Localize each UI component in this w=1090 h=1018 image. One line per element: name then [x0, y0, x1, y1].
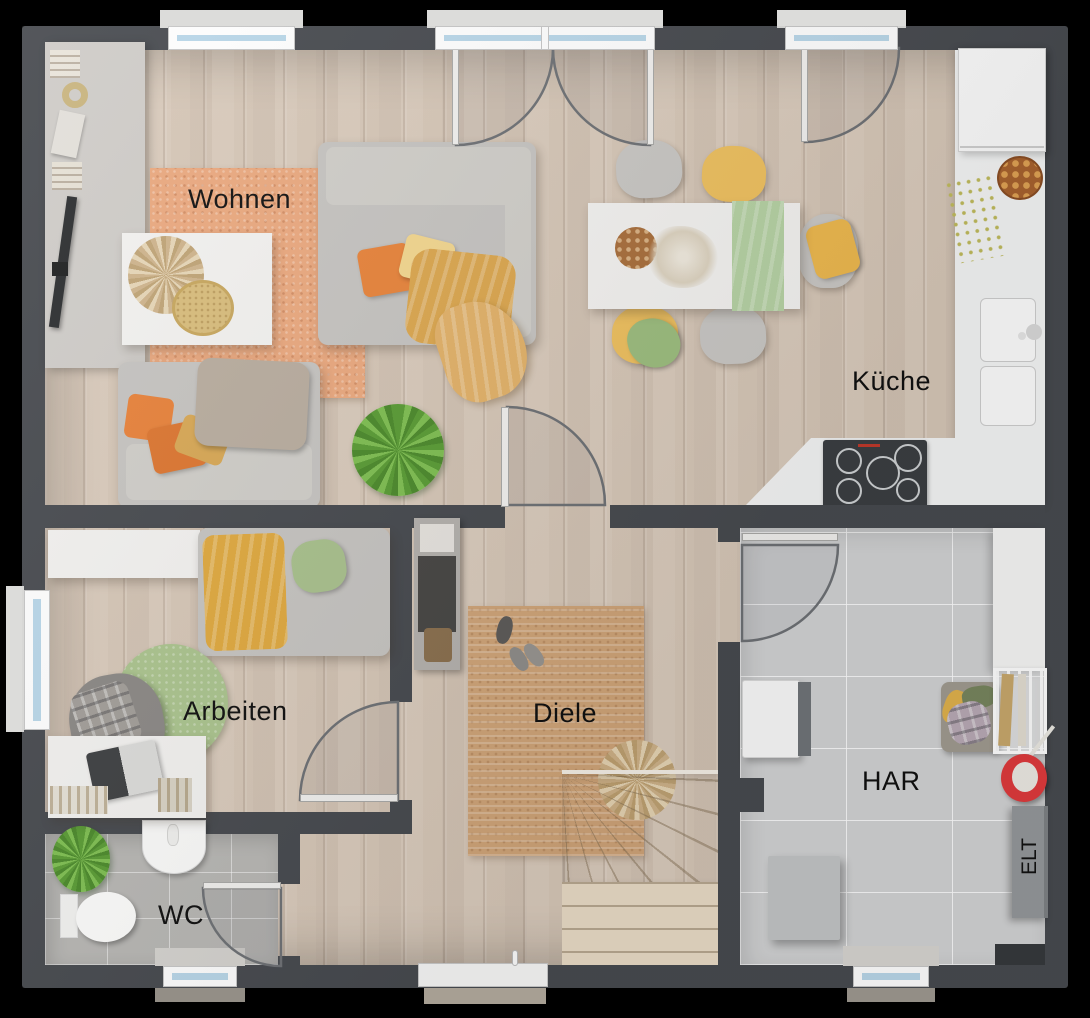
dining-chair-yellow-1 [701, 144, 768, 203]
door-leaf-wohnen [501, 407, 509, 507]
har-floor-recess [995, 944, 1045, 965]
washing-machine [742, 680, 800, 758]
tv-mount [52, 262, 68, 276]
window-glass [33, 599, 41, 721]
label-wc: WC [158, 902, 204, 929]
staircase-winder [562, 774, 718, 882]
label-har: HAR [862, 768, 921, 795]
wall-v-wc-b [278, 956, 300, 965]
dining-chair-gray-1 [615, 138, 684, 199]
door-leaf-french-right [647, 48, 654, 145]
wall-pilaster-har-overlay [740, 778, 764, 812]
window-sill-wc [155, 988, 245, 1002]
wall-v-har-a [718, 528, 740, 542]
daybed-blanket-yellow [202, 533, 288, 652]
table-runner-green [732, 201, 784, 311]
wc-window-niche [155, 948, 245, 966]
door-leaf-har [742, 533, 838, 541]
har-window-niche [843, 946, 939, 966]
window-sill-left [6, 586, 24, 732]
cooktop-display [858, 444, 880, 447]
hall-shelf-deco [420, 524, 454, 552]
entry-step [424, 988, 546, 1004]
har-cabinet-top [993, 528, 1045, 670]
door-leaf-wc [203, 882, 281, 889]
desk-books-1 [50, 786, 108, 814]
deco-books-2 [52, 162, 82, 190]
har-door-threshold [718, 542, 740, 642]
table-flowers [648, 226, 718, 288]
hall-shelf-bag [424, 628, 452, 662]
mop-head [1012, 762, 1038, 792]
blanket-taupe [194, 357, 310, 451]
fridge-door-seam [960, 146, 1044, 148]
window-sill-har [847, 988, 935, 1002]
window-terrace-door [785, 26, 898, 50]
plant-living [352, 404, 444, 496]
window-har [853, 966, 929, 987]
entry-door-handle [512, 950, 518, 966]
burner-4 [894, 444, 922, 472]
rack-cloth-white [1018, 674, 1026, 746]
floor-plan: Wohnen Küche [0, 0, 1090, 1018]
wall-v-office [390, 528, 412, 702]
window-glass [862, 973, 920, 980]
sink-basin-2 [980, 366, 1036, 426]
deco-wreath [62, 82, 88, 108]
burner-1 [836, 448, 862, 474]
fruit-bowl [997, 156, 1043, 200]
utility-unit [768, 856, 840, 940]
window-top-1 [168, 26, 295, 50]
gold-tray [172, 280, 234, 336]
label-kueche: Küche [852, 368, 931, 395]
window-glass [172, 973, 228, 980]
office-shelf [48, 530, 200, 578]
label-elt: ELT [1018, 838, 1042, 875]
wall-v-wc-a [278, 834, 300, 884]
burner-2 [836, 478, 862, 504]
french-door-mullion [541, 26, 549, 50]
deco-books [50, 50, 80, 78]
label-diele: Diele [533, 700, 597, 727]
dining-chair-gray-3 [699, 305, 767, 365]
desk-books-2 [158, 778, 192, 812]
sink-faucet [1026, 324, 1042, 340]
fridge [958, 48, 1046, 152]
window-left [24, 590, 50, 730]
label-wohnen: Wohnen [188, 186, 291, 213]
plant-wc [52, 826, 110, 892]
window-wc [163, 966, 237, 987]
door-leaf-terrace [801, 48, 808, 142]
window-glass [794, 35, 889, 41]
hall-shelf-board [418, 556, 456, 632]
window-glass [177, 35, 286, 41]
entry-door [418, 963, 548, 987]
door-leaf-french-left [452, 48, 459, 145]
label-arbeiten: Arbeiten [183, 698, 288, 725]
sofa-main-back [326, 147, 528, 205]
burner-5 [896, 478, 920, 502]
door-leaf-arbeiten [300, 794, 398, 802]
wc-sink-faucet [167, 824, 179, 846]
wall-h-right [610, 505, 1045, 528]
staircase-straight [562, 882, 718, 965]
washing-machine-panel [798, 682, 811, 756]
